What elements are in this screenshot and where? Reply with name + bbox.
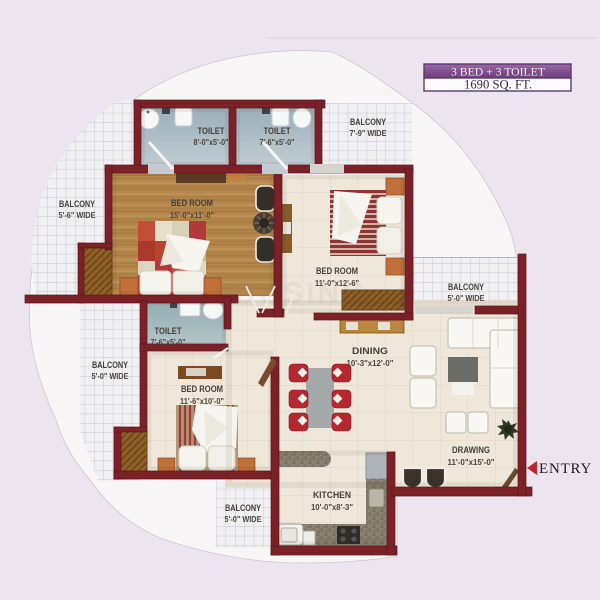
svg-text:DINING: DINING — [352, 346, 388, 356]
svg-text:11'-0"x12'-6": 11'-0"x12'-6" — [315, 279, 359, 288]
svg-text:ENTRY: ENTRY — [539, 461, 592, 477]
svg-text:7'-6"x5'-0": 7'-6"x5'-0" — [260, 138, 295, 147]
svg-text:1690 SQ. FT.: 1690 SQ. FT. — [464, 78, 532, 92]
svg-text:BALCONY: BALCONY — [350, 117, 386, 127]
svg-text:TOILET: TOILET — [198, 126, 225, 136]
svg-text:BALCONY: BALCONY — [92, 360, 128, 370]
svg-text:BALCONY: BALCONY — [59, 199, 95, 209]
svg-text:5'-0" WIDE: 5'-0" WIDE — [92, 372, 130, 381]
svg-text:5'-6" WIDE: 5'-6" WIDE — [59, 211, 97, 220]
svg-text:TOILET: TOILET — [155, 326, 182, 336]
svg-text:8'-0"x5'-0": 8'-0"x5'-0" — [194, 138, 229, 147]
svg-text:BALCONY: BALCONY — [448, 282, 484, 292]
svg-text:5'-0" WIDE: 5'-0" WIDE — [448, 294, 486, 303]
svg-text:BED ROOM: BED ROOM — [316, 266, 358, 276]
svg-text:10'-0"x8'-3": 10'-0"x8'-3" — [311, 503, 353, 512]
svg-text:TOILET: TOILET — [264, 126, 291, 136]
svg-text:10'-3"x12'-0": 10'-3"x12'-0" — [347, 359, 394, 368]
svg-text:BALCONY: BALCONY — [225, 503, 261, 513]
svg-text:7'-6"x5'-0": 7'-6"x5'-0" — [151, 338, 186, 347]
svg-text:BED ROOM: BED ROOM — [171, 198, 213, 208]
svg-text:3 BED + 3 TOILET: 3 BED + 3 TOILET — [451, 65, 546, 79]
svg-text:15'-0"x11'-0": 15'-0"x11'-0" — [170, 211, 214, 220]
svg-text:11'-6"x10'-0": 11'-6"x10'-0" — [180, 397, 224, 406]
svg-text:DRAWING: DRAWING — [452, 445, 490, 455]
svg-text:BED ROOM: BED ROOM — [181, 384, 223, 394]
svg-text:5'-0" WIDE: 5'-0" WIDE — [225, 515, 263, 524]
svg-text:11'-0"x15'-0": 11'-0"x15'-0" — [448, 458, 495, 467]
svg-text:KITCHEN: KITCHEN — [313, 490, 351, 500]
svg-text:7'-9" WIDE: 7'-9" WIDE — [350, 129, 388, 138]
